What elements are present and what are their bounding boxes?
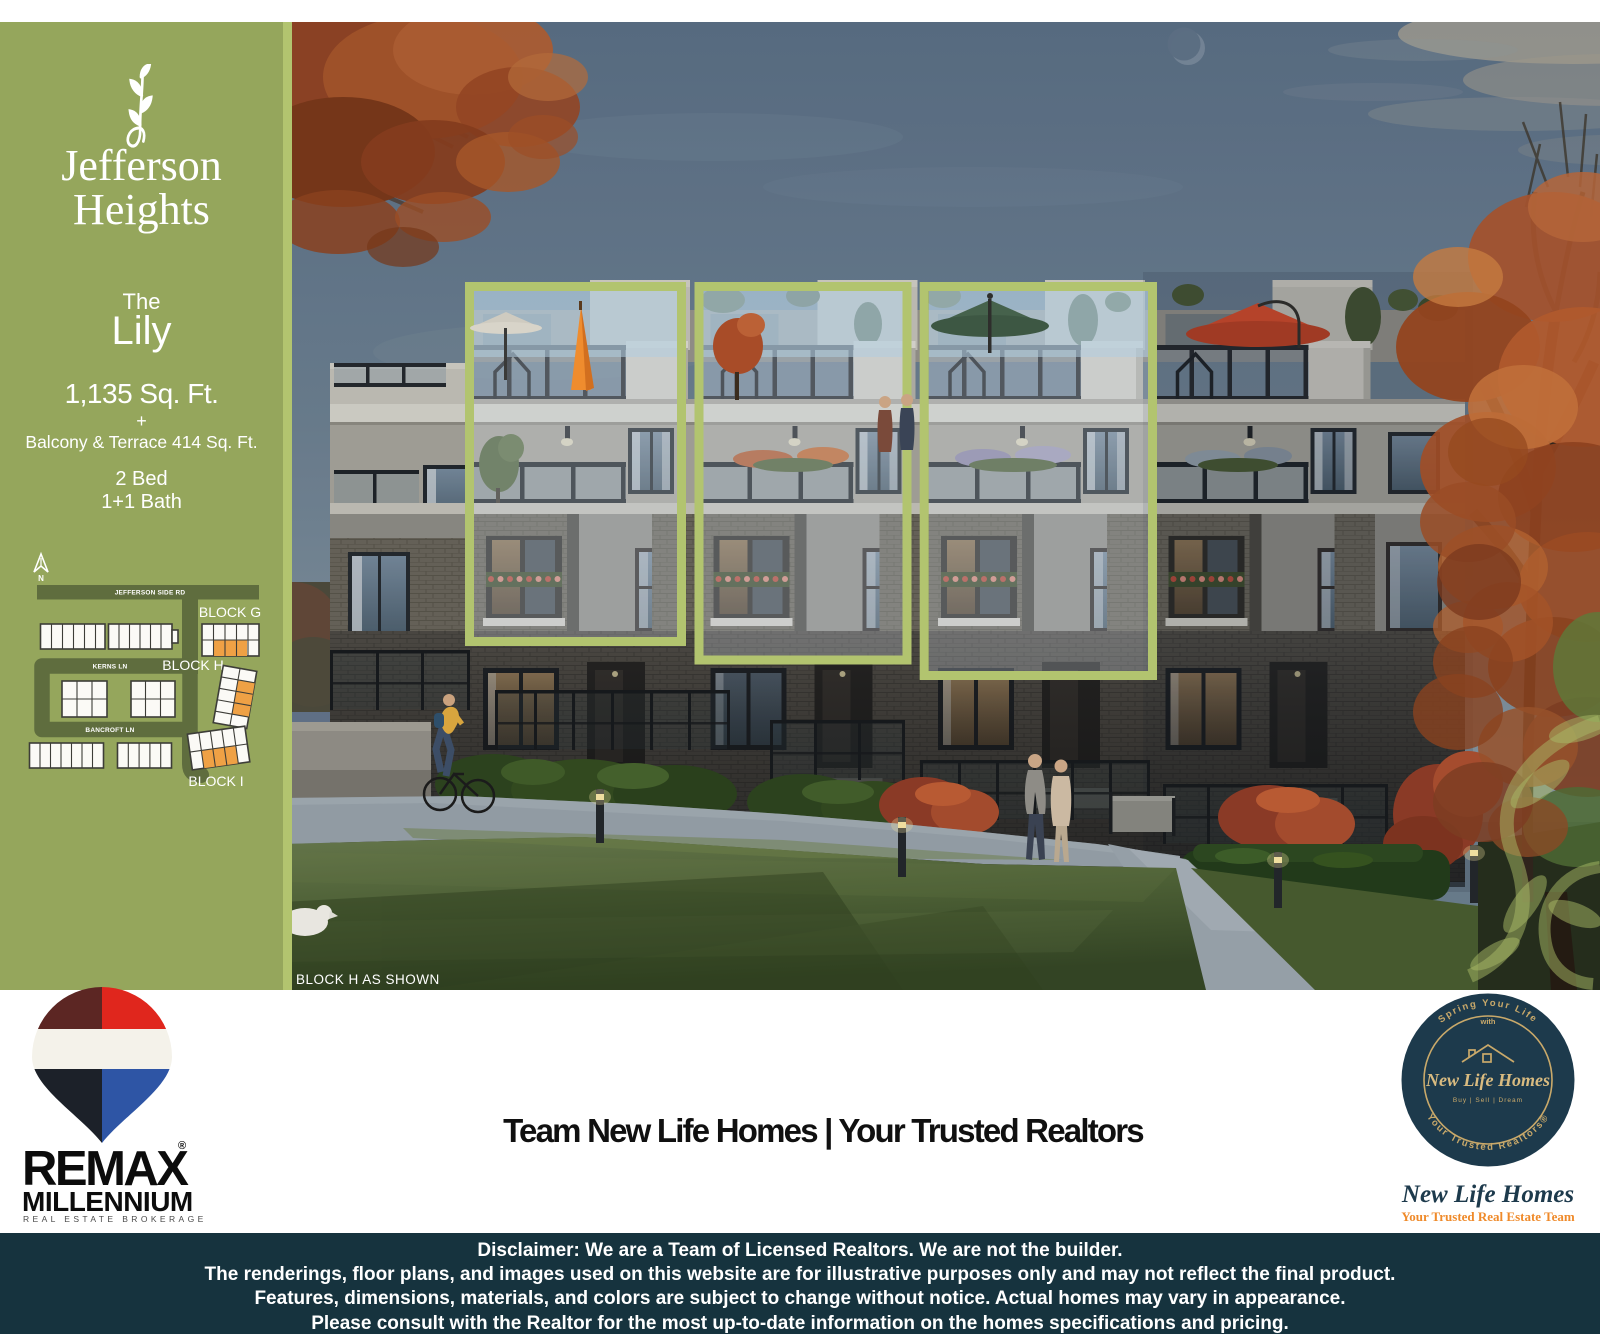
svg-text:N: N	[38, 574, 44, 583]
svg-text:BANCROFT LN: BANCROFT LN	[85, 727, 134, 734]
svg-text:BLOCK H: BLOCK H	[162, 657, 223, 673]
svg-text:MILLENNIUM: MILLENNIUM	[22, 1186, 193, 1217]
svg-text:Buy | Sell | Dream: Buy | Sell | Dream	[1453, 1097, 1523, 1104]
svg-text:New Life Homes: New Life Homes	[1401, 1181, 1574, 1208]
svg-text:KERNS LN: KERNS LN	[93, 664, 128, 671]
svg-text:REAL ESTATE BROKERAGE: REAL ESTATE BROKERAGE	[23, 1214, 207, 1224]
svg-text:New Life Homes: New Life Homes	[1425, 1070, 1550, 1090]
svg-text:BLOCK H AS SHOWN: BLOCK H AS SHOWN	[296, 972, 440, 987]
svg-text:BLOCK G: BLOCK G	[199, 604, 261, 620]
svg-text:with: with	[1480, 1017, 1496, 1026]
svg-text:®: ®	[178, 1140, 186, 1152]
svg-text:JEFFERSON SIDE RD: JEFFERSON SIDE RD	[115, 590, 186, 597]
svg-text:Your Trusted Real Estate Team: Your Trusted Real Estate Team	[1401, 1209, 1575, 1224]
svg-text:BLOCK I: BLOCK I	[188, 773, 243, 789]
